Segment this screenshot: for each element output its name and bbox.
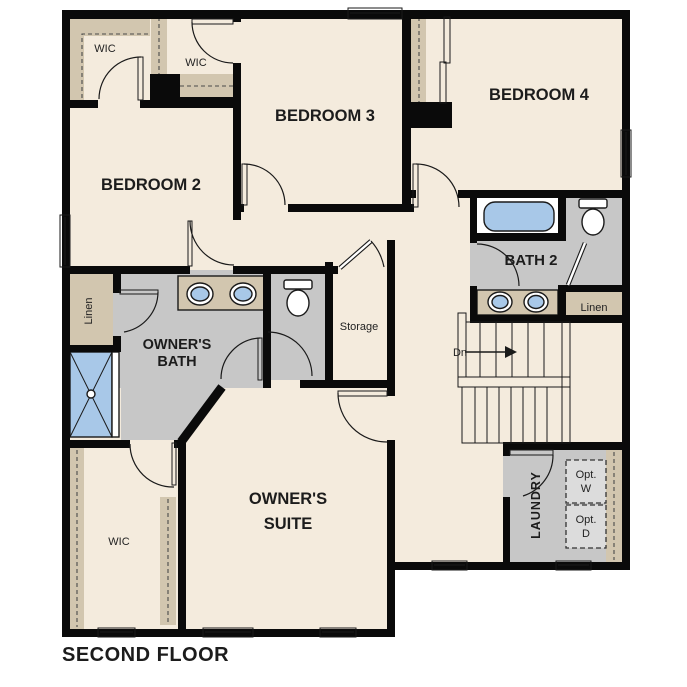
room-label-owners-bath-line1: OWNER'S: [143, 337, 212, 353]
floor-plan: BEDROOM 2 BEDROOM 3 BEDROOM 4 OWNER'S SU…: [0, 0, 687, 687]
room-label-bedroom4: BEDROOM 4: [489, 86, 590, 104]
bathtub-icon: [484, 202, 554, 231]
label-opt-washer-line2: W: [581, 483, 592, 495]
label-opt-washer-line1: Opt.: [576, 469, 597, 481]
label-linen-bath2: Linen: [581, 302, 608, 314]
label-wic-bedroom2: WIC: [94, 43, 115, 55]
shower-icon: [70, 352, 119, 437]
label-wic-owner: WIC: [108, 536, 129, 548]
room-label-bedroom3: BEDROOM 3: [275, 107, 375, 125]
label-storage: Storage: [340, 321, 379, 333]
room-label-bath2: BATH 2: [504, 252, 557, 269]
plan-title: SECOND FLOOR: [62, 644, 229, 666]
room-label-owners-bath-line2: BATH: [157, 354, 196, 370]
floor-plan-page: BEDROOM 2 BEDROOM 3 BEDROOM 4 OWNER'S SU…: [0, 0, 687, 687]
room-label-bedroom2: BEDROOM 2: [101, 176, 201, 194]
label-linen-owner: Linen: [83, 298, 95, 325]
opt-dryer-box: [566, 505, 606, 548]
opt-washer-box: [566, 460, 606, 503]
label-laundry: LAUNDRY: [529, 471, 543, 539]
label-opt-dryer-line1: Opt.: [576, 514, 597, 526]
room-label-owners-suite-line2: SUITE: [264, 515, 313, 533]
room-label-owners-suite-line1: OWNER'S: [249, 490, 327, 508]
label-opt-dryer-line2: D: [582, 528, 590, 540]
label-wic-bedroom3: WIC: [185, 57, 206, 69]
label-stairs-down: Dn: [453, 347, 467, 359]
